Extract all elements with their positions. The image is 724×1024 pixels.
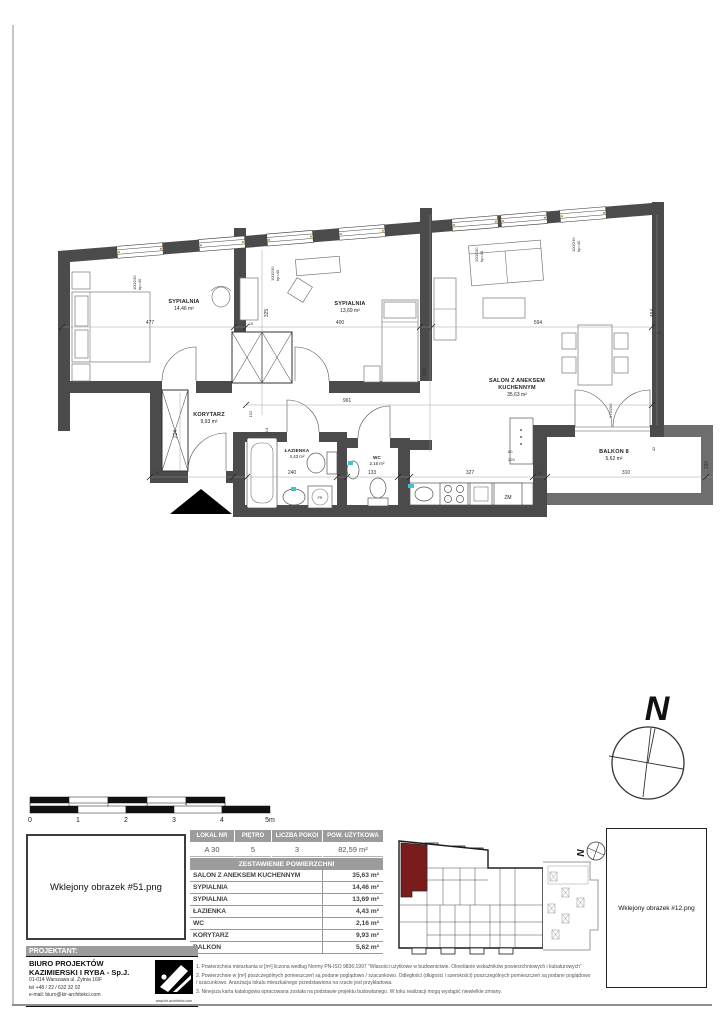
svg-text:13,69 m²: 13,69 m²: [340, 308, 360, 314]
svg-text:4,43 m²: 4,43 m²: [290, 454, 305, 459]
keyplan-compass: N: [576, 842, 605, 860]
svg-text:133: 133: [368, 470, 377, 476]
north-letter: N: [645, 690, 671, 728]
note-line: 1. Powierzchnia mieszkania w [m²] liczon…: [196, 964, 592, 972]
kir-logo-icon: [155, 960, 193, 994]
svg-text:327: 327: [466, 470, 475, 476]
table-row: WC2,16 m²: [190, 918, 383, 930]
unit-table-header: LOKAL NR PIĘTRO LICZBA POKOI POW. UŻYTKO…: [190, 830, 383, 842]
svg-text:325: 325: [264, 309, 270, 318]
bed-2: [364, 300, 418, 382]
svg-text:hp=40: hp=40: [137, 278, 142, 290]
tap-icon: [408, 484, 414, 488]
svg-text:14,46 m²: 14,46 m²: [174, 306, 194, 312]
page-frame-bottom: [12, 1004, 712, 1006]
room-label-sypialnia-2: SYPIALNIA: [334, 301, 365, 307]
floor-plan-drawing: ZM PR: [0, 170, 724, 530]
svg-text:240: 240: [288, 470, 297, 476]
designer-website: www.kir-architekci.com: [152, 999, 196, 1003]
washer-label: PR: [318, 496, 323, 500]
unit-table-row: A 30 5 3 82,59 m²: [190, 842, 383, 857]
svg-text:310: 310: [622, 470, 631, 476]
svg-text:594: 594: [534, 320, 543, 326]
room-label-sypialnia-1: SYPIALNIA: [168, 299, 199, 305]
unit-info-table: LOKAL NR PIĘTRO LICZBA POKOI POW. UŻYTKO…: [190, 830, 383, 857]
svg-text:180: 180: [704, 461, 710, 470]
svg-text:KUCHENNYM: KUCHENNYM: [498, 385, 536, 391]
balcony-door-label: 175/260: [608, 403, 613, 418]
building-key-plan: N: [388, 830, 608, 955]
placeholder-text: Wklejony obrazek #51.png: [50, 882, 162, 893]
dining-set: [562, 325, 628, 385]
room-label-korytarz: KORYTARZ: [193, 412, 225, 418]
note-line: 2. Powierzchnie w [m²] poszczególnych po…: [196, 973, 592, 988]
table-row: KORYTARZ9,93 m²: [190, 930, 383, 942]
sofa: [469, 240, 544, 286]
svg-text:42: 42: [651, 446, 656, 451]
placeholder-text: Wklejony obrazek #12.png: [618, 905, 695, 912]
north-compass: N: [595, 685, 720, 810]
legal-notes: 1. Powierzchnia mieszkania w [m²] liczon…: [196, 964, 592, 997]
tv-sideboard: [434, 278, 456, 340]
svg-text:42: 42: [538, 470, 543, 475]
table-row: SYPIALNIA13,69 m²: [190, 894, 383, 906]
svg-text:25: 25: [155, 470, 160, 475]
svg-text:152: 152: [248, 410, 253, 417]
designer-block: PROJEKTANT: BIURO PROJEKTÓW KAZIMIERSKI …: [26, 946, 198, 1007]
tap-icon: [348, 461, 353, 465]
svg-text:0: 0: [28, 817, 32, 824]
table-row: SALON Z ANEKSEM KUCHENNYM35,63 m²: [190, 870, 383, 882]
room-label-salon: SALON Z ANEKSEM: [489, 378, 545, 384]
coffee-table: [483, 298, 525, 318]
svg-text:hp=40: hp=40: [576, 240, 581, 252]
svg-text:224: 224: [173, 430, 179, 439]
svg-text:10: 10: [249, 321, 254, 326]
svg-text:4: 4: [220, 817, 224, 824]
svg-text:1: 1: [76, 817, 80, 824]
highlighted-unit: [401, 843, 427, 897]
entrance-arrow: [170, 489, 232, 514]
svg-text:14: 14: [264, 427, 269, 432]
wc-fixtures: [347, 461, 388, 506]
table-row: BALKON5,62 m²: [190, 942, 383, 954]
svg-text:9,93 m²: 9,93 m²: [201, 419, 218, 425]
tap-icon: [291, 487, 296, 491]
svg-text:42: 42: [657, 330, 662, 335]
area-table-title: ZESTAWIENIE POWIERZCHNI: [190, 858, 383, 870]
svg-text:hp=40: hp=40: [275, 269, 280, 281]
table-row: ŁAZIENKA4,43 m²: [190, 906, 383, 918]
svg-text:961: 961: [343, 398, 352, 404]
note-line: 3. Ninejsza karta katalogowa opracowana …: [196, 989, 592, 997]
svg-text:hp=40: hp=40: [479, 250, 484, 262]
svg-text:60: 60: [508, 449, 513, 454]
svg-text:5m: 5m: [265, 817, 275, 824]
svg-text:2,16 m²: 2,16 m²: [370, 461, 385, 466]
north-letter-small: N: [576, 849, 587, 857]
svg-text:477: 477: [146, 320, 155, 326]
dishwasher-label: ZM: [504, 495, 511, 501]
pasted-image-placeholder-left: Wklejony obrazek #51.png: [26, 834, 186, 940]
svg-text:400: 400: [336, 320, 345, 326]
designer-header: PROJEKTANT:: [26, 946, 198, 956]
svg-text:5,62 m²: 5,62 m²: [606, 456, 623, 462]
pasted-image-placeholder-right: Wklejony obrazek #12.png: [606, 828, 707, 988]
svg-text:3: 3: [172, 817, 176, 824]
designer-body: BIURO PROJEKTÓW KAZIMIERSKI I RYBA - Sp.…: [26, 956, 198, 1007]
svg-text:35,63 m²: 35,63 m²: [507, 392, 527, 398]
svg-text:2: 2: [124, 817, 128, 824]
desk-chair-2: [288, 256, 341, 302]
svg-text:680: 680: [422, 368, 428, 377]
svg-text:494: 494: [650, 309, 656, 318]
table-row: SYPIALNIA14,46 m²: [190, 882, 383, 894]
svg-text:220: 220: [508, 457, 515, 462]
room-label-balkon: BALKON 8: [599, 449, 629, 455]
scale-bar: 0 1 2 3 4 5 0 1 2 3 4 5m: [25, 790, 285, 825]
designer-logo: www.kir-architekci.com: [152, 960, 196, 1003]
room-label-wc: WC: [373, 455, 382, 460]
area-summary-table: ZESTAWIENIE POWIERZCHNI SALON Z ANEKSEM …: [190, 858, 383, 954]
room-label-lazienka: ŁAZIENKA: [285, 448, 310, 453]
